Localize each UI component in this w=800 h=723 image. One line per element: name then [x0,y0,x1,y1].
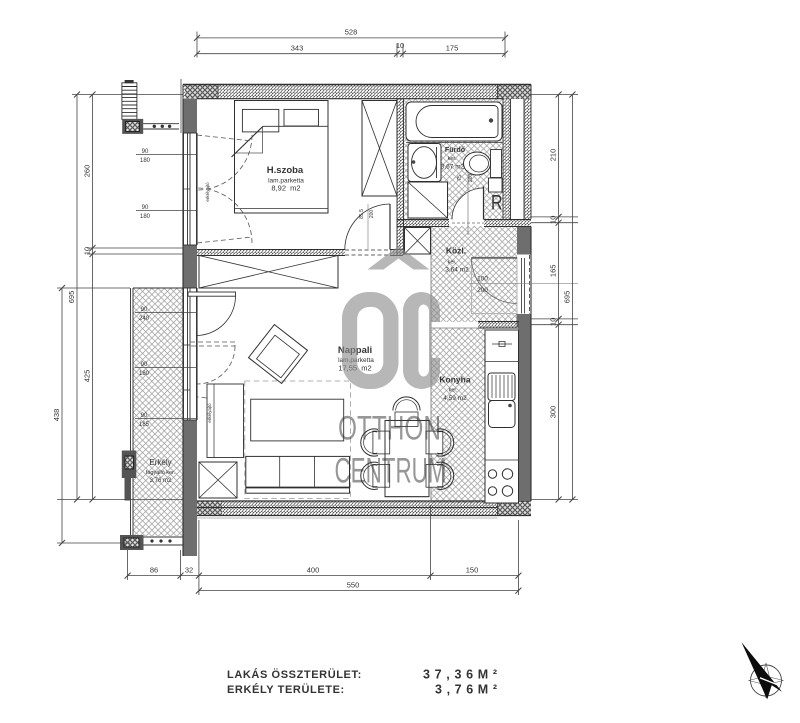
svg-text:240: 240 [139,316,150,322]
svg-text:ERKÉLY TERÜLETE:: ERKÉLY TERÜLETE: [227,683,345,696]
svg-text:90: 90 [141,362,148,368]
svg-text:550: 550 [347,581,360,590]
svg-text:90: 90 [142,205,149,211]
svg-text:90: 90 [141,307,148,313]
svg-text:H.szoba: H.szoba [267,165,304,176]
svg-text:8,92 m2: 8,92 m2 [271,184,300,193]
svg-text:528: 528 [345,28,358,37]
svg-text:CENTRUM: CENTRUM [335,452,447,491]
svg-text:OTTHON: OTTHON [338,410,441,448]
svg-text:3,67 m2: 3,67 m2 [441,164,465,171]
svg-text:ker.: ker. [448,260,457,266]
svg-text:Közl.: Közl. [446,246,466,256]
svg-text:Konyha: Konyha [439,375,470,385]
svg-text:86: 86 [150,566,158,575]
svg-text:425: 425 [83,370,92,383]
svg-text:erkélyajtó: erkélyajtó [207,403,212,423]
svg-text:32: 32 [185,566,193,575]
svg-text:4,59 m2: 4,59 m2 [443,395,467,402]
svg-text:200: 200 [369,210,375,219]
svg-text:LAKÁS ÖSSZTERÜLET:: LAKÁS ÖSSZTERÜLET: [227,668,362,681]
svg-text:90: 90 [141,413,148,419]
svg-text:438: 438 [52,409,61,422]
svg-text:10: 10 [549,318,558,326]
svg-text:ker.: ker. [448,156,457,162]
svg-text:695: 695 [67,291,76,304]
svg-text:37,36M²: 37,36M² [423,668,497,682]
svg-text:300: 300 [549,406,558,419]
svg-text:Fürdő: Fürdő [445,145,466,154]
svg-text:180: 180 [139,371,150,377]
svg-text:200: 200 [468,174,474,183]
svg-text:185: 185 [139,422,150,428]
svg-text:180: 180 [140,158,151,164]
svg-text:695: 695 [562,291,571,304]
svg-text:fagyálló ker.: fagyálló ker. [146,470,176,476]
svg-text:150: 150 [466,566,479,575]
svg-text:3,76 m2: 3,76 m2 [150,478,172,484]
svg-text:10: 10 [83,247,92,255]
svg-text:10: 10 [549,216,558,224]
svg-text:R: R [491,192,503,215]
svg-text:343: 343 [291,44,304,53]
svg-text:175: 175 [446,44,459,53]
svg-text:75: 75 [457,175,463,181]
svg-text:erkélyajtó: erkélyajtó [205,182,210,202]
svg-text:100: 100 [477,276,488,283]
svg-text:85,5: 85,5 [359,209,365,219]
svg-text:3,64 m2: 3,64 m2 [445,267,469,274]
svg-text:180: 180 [140,214,151,220]
svg-text:260: 260 [83,165,92,178]
svg-text:200: 200 [477,287,488,294]
svg-text:10: 10 [396,41,404,50]
svg-text:165: 165 [549,265,558,278]
svg-text:90: 90 [142,149,149,155]
svg-text:210: 210 [549,149,558,162]
svg-text:400: 400 [307,566,320,575]
svg-text:Erkély: Erkély [149,458,171,467]
svg-text:ker.: ker. [449,388,458,394]
